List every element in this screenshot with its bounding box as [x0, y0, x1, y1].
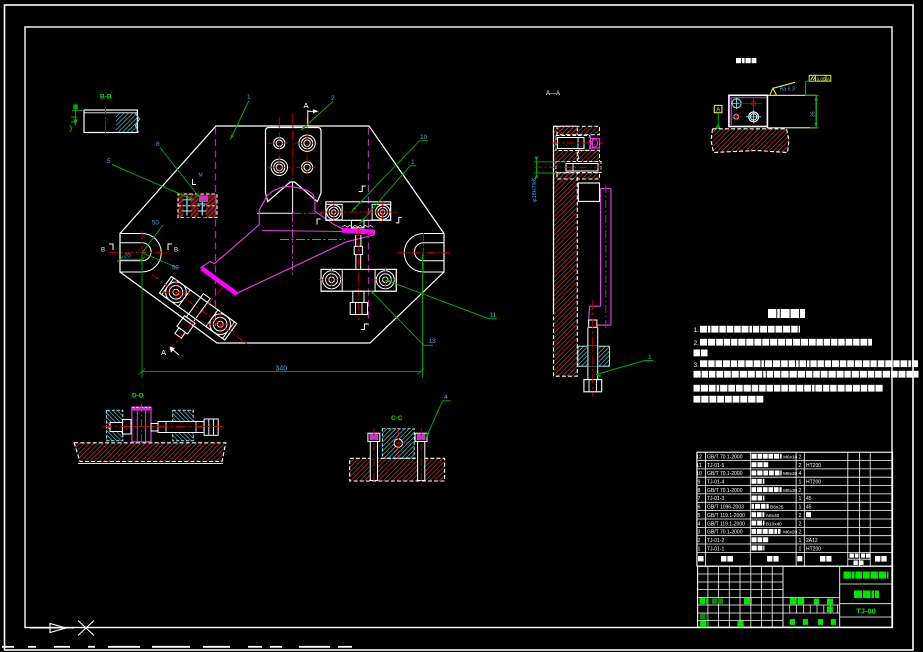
svg-text:B: B [174, 248, 178, 254]
svg-text:M6x16: M6x16 [783, 454, 797, 459]
svg-text:GB/T 70.1-2000: GB/T 70.1-2000 [707, 530, 743, 536]
svg-text:M8x20: M8x20 [783, 471, 797, 476]
svg-text:10: 10 [696, 471, 702, 477]
svg-text:8: 8 [156, 141, 160, 148]
svg-text:2: 2 [799, 530, 802, 536]
svg-text:1: 1 [648, 354, 652, 361]
svg-text:B-B: B-B [100, 94, 112, 101]
svg-text:1: 1 [247, 94, 251, 101]
svg-text:2.: 2. [694, 340, 700, 347]
svg-text:TJ-01-3: TJ-01-3 [707, 496, 724, 502]
svg-text:10: 10 [420, 134, 428, 141]
svg-text:TJ-01-2: TJ-01-2 [707, 538, 724, 544]
svg-text:1: 1 [799, 496, 802, 502]
svg-text:2A12: 2A12 [806, 538, 818, 544]
svg-text:2: 2 [799, 488, 802, 494]
svg-text:B10x40: B10x40 [766, 521, 782, 526]
svg-text:2: 2 [799, 454, 802, 460]
svg-text:A: A [716, 107, 720, 113]
svg-text:6: 6 [698, 505, 701, 511]
svg-text:HT200: HT200 [806, 546, 821, 552]
svg-text:GB/T 70.1-2000: GB/T 70.1-2000 [707, 471, 743, 477]
svg-text:GB/T 119.1-2000: GB/T 119.1-2000 [707, 513, 745, 519]
svg-text:1: 1 [799, 546, 802, 552]
svg-text:0.05: 0.05 [817, 76, 826, 81]
svg-text:2: 2 [331, 95, 335, 102]
svg-text:2: 2 [799, 521, 802, 527]
svg-text:4: 4 [698, 521, 701, 527]
svg-text:11: 11 [696, 463, 701, 469]
svg-text:12: 12 [696, 454, 702, 460]
svg-text:M6x20: M6x20 [783, 530, 797, 535]
svg-text:1: 1 [698, 546, 701, 552]
svg-text:1.: 1. [694, 327, 700, 334]
svg-text:Ra 6.3: Ra 6.3 [780, 87, 795, 93]
svg-text:3: 3 [698, 530, 701, 536]
svg-text:C-C: C-C [391, 415, 403, 422]
svg-text:8: 8 [698, 488, 701, 494]
svg-text:7: 7 [698, 496, 701, 502]
svg-text:2: 2 [799, 463, 802, 469]
svg-text:5: 5 [698, 513, 701, 519]
svg-text:φ18H7/k6: φ18H7/k6 [532, 178, 538, 202]
svg-text:2: 2 [799, 513, 802, 519]
svg-text:1: 1 [411, 159, 415, 166]
svg-text:3.: 3. [694, 362, 700, 369]
svg-text:1: 1 [799, 505, 802, 511]
svg-text:1: 1 [799, 538, 802, 544]
svg-text:GB/T 70.1-2000: GB/T 70.1-2000 [707, 488, 743, 494]
svg-text:45: 45 [806, 496, 812, 502]
svg-text:A8x30: A8x30 [766, 513, 780, 518]
svg-text:A: A [304, 101, 309, 110]
svg-text:340: 340 [276, 366, 288, 373]
svg-text:A: A [161, 348, 166, 357]
svg-text:GB/T 1096-2003: GB/T 1096-2003 [707, 505, 744, 511]
svg-text:A—A: A—A [546, 91, 560, 97]
svg-text:TJ-01-5: TJ-01-5 [707, 463, 724, 469]
svg-text:B: B [101, 248, 105, 254]
svg-text:GB/T 70.1-2000: GB/T 70.1-2000 [707, 454, 743, 460]
svg-text:20: 20 [124, 254, 131, 260]
svg-text:5: 5 [107, 158, 111, 165]
svg-text:HT200: HT200 [806, 480, 821, 486]
svg-text:TJ-00: TJ-00 [856, 607, 876, 616]
svg-text:B6x25: B6x25 [770, 505, 784, 510]
svg-text:50: 50 [172, 266, 179, 272]
svg-text:HT200: HT200 [806, 463, 821, 469]
svg-text:M8x30: M8x30 [783, 488, 797, 493]
svg-text:4: 4 [799, 471, 802, 477]
svg-text:GB/T 119.1-2000: GB/T 119.1-2000 [707, 521, 745, 527]
svg-text:45: 45 [806, 505, 812, 511]
svg-text:4: 4 [444, 394, 448, 401]
svg-text:TJ-01-4: TJ-01-4 [707, 480, 724, 486]
svg-text:TJ-01-1: TJ-01-1 [707, 546, 724, 552]
svg-text:1: 1 [799, 480, 802, 486]
svg-text:D-D: D-D [132, 393, 144, 400]
svg-text:M: M [199, 173, 203, 179]
svg-text:35: 35 [811, 111, 817, 117]
svg-text:50: 50 [152, 221, 159, 227]
svg-text:11: 11 [490, 312, 497, 319]
svg-text:13: 13 [429, 338, 437, 345]
svg-text:2: 2 [698, 538, 701, 544]
svg-text:9: 9 [698, 480, 701, 486]
